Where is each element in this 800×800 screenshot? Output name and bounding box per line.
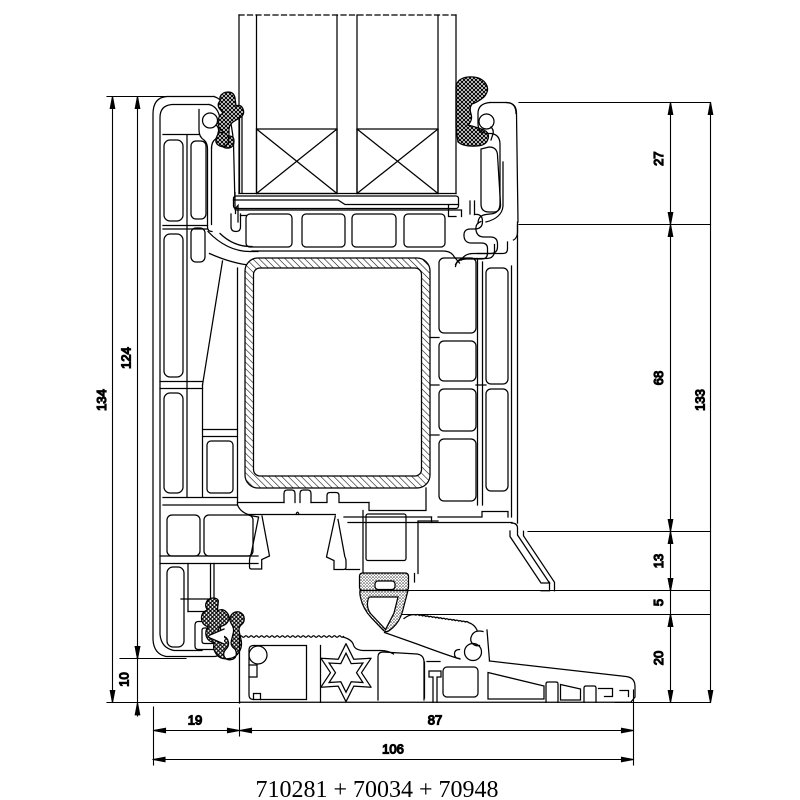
svg-text:68: 68 — [651, 371, 666, 385]
svg-text:87: 87 — [428, 713, 442, 728]
svg-text:20: 20 — [651, 651, 666, 665]
svg-text:10: 10 — [117, 672, 132, 686]
svg-text:106: 106 — [382, 742, 404, 757]
svg-text:13: 13 — [651, 554, 666, 568]
svg-text:5: 5 — [651, 599, 666, 606]
svg-text:134: 134 — [94, 389, 109, 411]
svg-text:27: 27 — [651, 151, 666, 165]
svg-text:19: 19 — [188, 713, 202, 728]
svg-text:133: 133 — [693, 389, 708, 411]
svg-text:124: 124 — [119, 347, 134, 369]
svg-text:710281 + 70034 + 70948: 710281 + 70034 + 70948 — [255, 777, 498, 800]
